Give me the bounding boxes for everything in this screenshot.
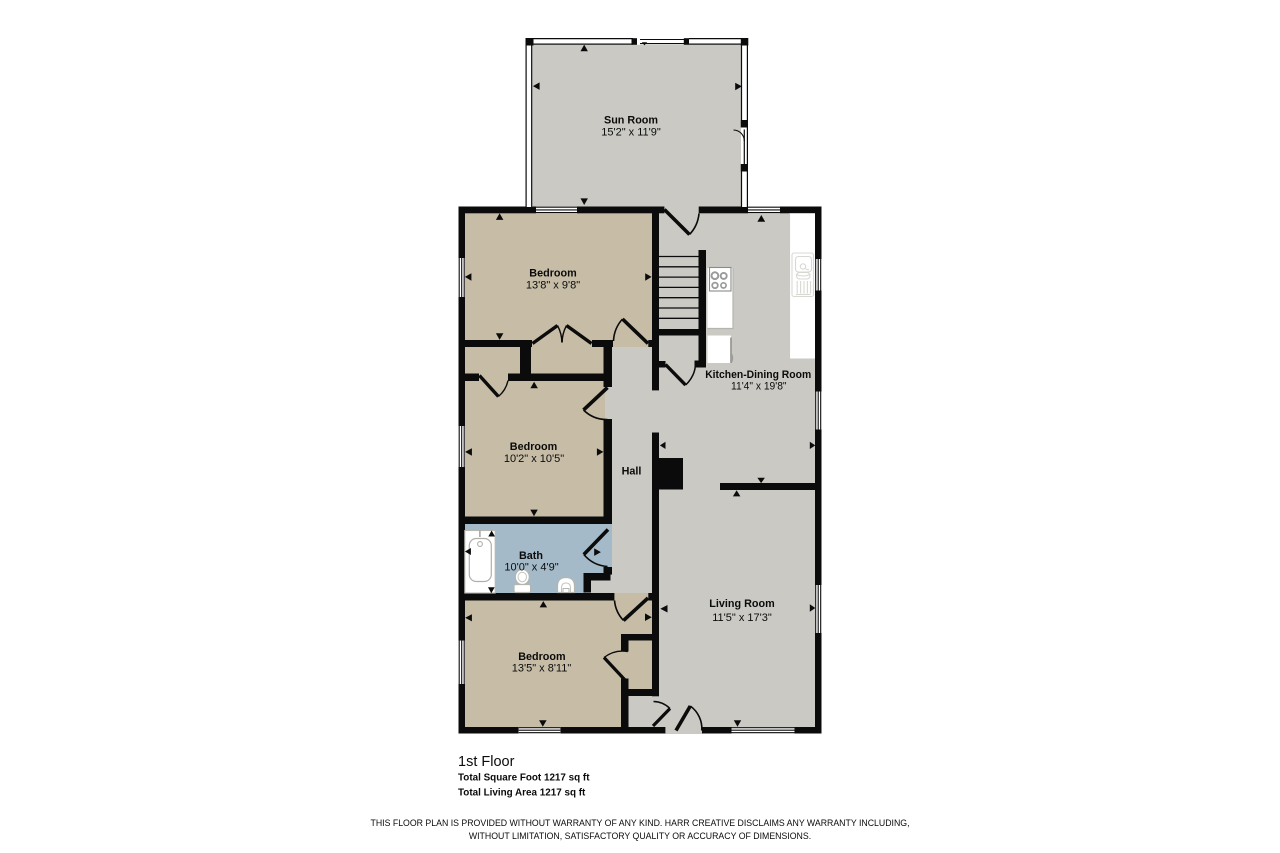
svg-text:Hall: Hall (622, 466, 642, 478)
svg-text:13'5" x 8'11": 13'5" x 8'11" (512, 663, 572, 675)
svg-text:Total Living Area 1217 sq ft: Total Living Area 1217 sq ft (458, 788, 586, 799)
svg-text:10'2" x 10'5": 10'2" x 10'5" (504, 453, 564, 465)
svg-text:11'4" x 19'8": 11'4" x 19'8" (731, 381, 787, 393)
svg-text:Sun Room: Sun Room (604, 115, 658, 127)
svg-text:THIS FLOOR PLAN IS PROVIDED WI: THIS FLOOR PLAN IS PROVIDED WITHOUT WARR… (370, 818, 909, 828)
svg-text:15'2" x 11'9": 15'2" x 11'9" (601, 127, 661, 139)
svg-text:Bath: Bath (519, 550, 543, 562)
svg-text:1st Floor: 1st Floor (458, 754, 515, 770)
svg-text:Kitchen-Dining Room: Kitchen-Dining Room (705, 369, 811, 381)
svg-text:Total Square Foot 1217 sq ft: Total Square Foot 1217 sq ft (458, 773, 590, 784)
svg-text:Living Room: Living Room (709, 598, 774, 610)
svg-text:Bedroom: Bedroom (518, 651, 565, 663)
svg-text:Bedroom: Bedroom (510, 441, 557, 453)
svg-text:WITHOUT LIMITATION, SATISFACTO: WITHOUT LIMITATION, SATISFACTORY QUALITY… (469, 831, 811, 841)
svg-text:13'8" x 9'8": 13'8" x 9'8" (526, 280, 580, 292)
svg-text:Bedroom: Bedroom (529, 267, 576, 279)
svg-text:11'5" x 17'3": 11'5" x 17'3" (712, 612, 772, 624)
svg-text:10'0" x 4'9": 10'0" x 4'9" (504, 562, 558, 574)
